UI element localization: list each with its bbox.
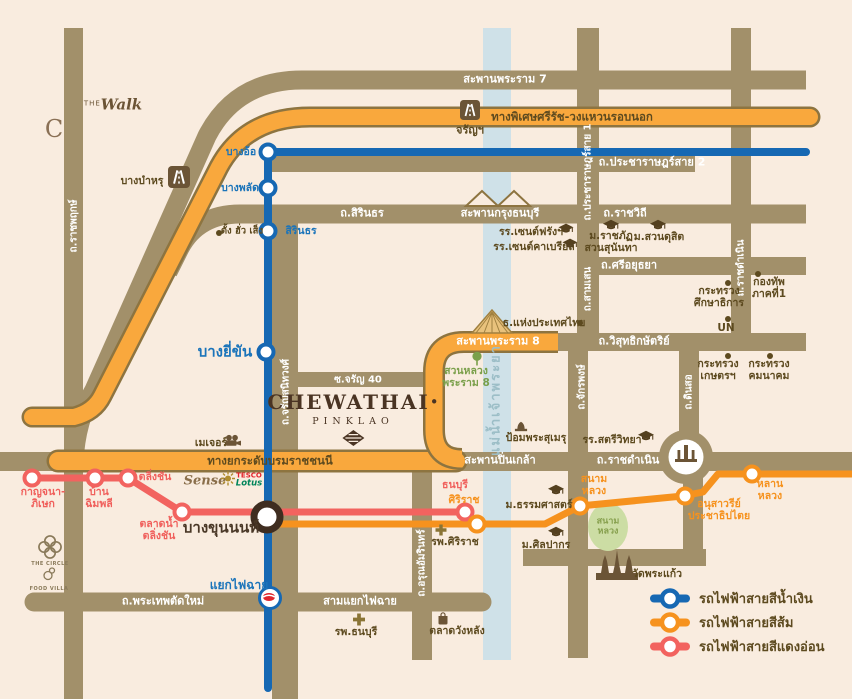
democracy-monument-roundabout bbox=[659, 430, 713, 484]
poi-label-charan-gate: จรัญฯ bbox=[456, 125, 484, 138]
poi-label-thonburi-hospital: รพ.ธนบุรี bbox=[335, 626, 377, 638]
tesco-lotus-logo: TESCO Lotus bbox=[236, 472, 262, 488]
station-label-taling-chan: ตลิ่งชัน bbox=[139, 471, 172, 483]
station-label-kanchanaphisek: กาญจนา-ภิเษก bbox=[21, 486, 66, 510]
label-line-1: กระทรวง bbox=[698, 285, 739, 297]
road-label-pracharat2: ถ.ประชาราษฎร์สาย 2 bbox=[599, 157, 706, 170]
label-line-1: อนุสาวรีย์ bbox=[697, 498, 740, 510]
road-label-phrathep: ถ.พระเทพตัดใหม่ bbox=[122, 596, 204, 609]
road-label-borommaratchachonnani: ทางยกระดับบรมราชชนนี bbox=[207, 454, 333, 467]
label-line-1: สวนหลวง bbox=[444, 365, 488, 377]
station-marker-siriraj bbox=[468, 515, 487, 534]
poi-label-phra-sumen-fort: ป้อมพระสุเมรุ bbox=[506, 432, 567, 444]
station-marker-bang-o bbox=[259, 143, 278, 162]
road-label-sirindhorn: ถ.สิรินธร bbox=[340, 208, 384, 221]
poi-label-suan-dusit: ม.สวนดุสิต bbox=[634, 231, 684, 243]
red-line-legend-icon bbox=[650, 636, 690, 657]
road-label-pinklao-bridge: สะพานปิ่นเกล้า bbox=[464, 455, 535, 468]
motorway-icon bbox=[460, 100, 480, 124]
label-line-2: ตลิ่งชัน bbox=[143, 530, 176, 542]
poi-label-wang-lang-market: ตลาดวังหลัง bbox=[429, 625, 484, 637]
label-line-1: สนาม bbox=[581, 473, 607, 485]
label-line-2: ประชาธิปไตย bbox=[688, 510, 750, 522]
road-label-rama7: สะพานพระราม 7 bbox=[463, 74, 546, 87]
station-marker-kanchanaphisek bbox=[23, 469, 42, 488]
graduation-cap-icon bbox=[563, 236, 578, 255]
label-line-2: ศึกษาธิการ bbox=[694, 297, 744, 309]
sense-logo: Sense bbox=[184, 474, 227, 489]
movie-camera-icon bbox=[225, 432, 241, 451]
label-line-2: สวนสุนันทา bbox=[584, 242, 637, 254]
poi-label-army-area1: กองทัพภาคที่1 bbox=[752, 276, 786, 300]
food-villa-logo-icon bbox=[42, 567, 57, 586]
station-label-democracy-monument: อนุสาวรีย์ประชาธิปไตย bbox=[688, 498, 750, 522]
label-line-2: หลวง bbox=[582, 485, 606, 497]
legend-item-red-line: รถไฟฟ้าสายสีแดงอ่อน bbox=[650, 636, 825, 657]
label-line-1: ตลาดน้ำ bbox=[139, 518, 178, 530]
the-walk-logo-text: THE bbox=[84, 100, 101, 108]
the-walk-logo: THEWalk bbox=[84, 95, 142, 114]
poi-label-st-francis: รร.เซนต์ฟรังฯ bbox=[499, 226, 563, 238]
poi-label-bank-of-thailand: ธ.แห่งประเทศไทย bbox=[503, 317, 586, 329]
legend-label-blue-line: รถไฟฟ้าสายสีน้ำเงิน bbox=[699, 588, 813, 609]
road-label-wisutkasat: ถ.วิสุทธิกษัตริย์ bbox=[598, 336, 669, 349]
label-line-2: ภาคที่1 bbox=[752, 288, 786, 300]
label-line-1: หลาน bbox=[757, 478, 783, 490]
label-line-2: หลวง bbox=[758, 490, 782, 502]
chewathai-diamond-icon bbox=[342, 430, 364, 446]
c-mall-logo: C bbox=[45, 115, 63, 143]
station-label-sirindhorn: สิรินธร bbox=[285, 225, 316, 237]
poi-label-sanam-luang-park: สนามหลวง bbox=[597, 517, 620, 538]
label-line-2: ภิเษก bbox=[31, 498, 55, 510]
legend-item-blue-line: รถไฟฟ้าสายสีน้ำเงิน bbox=[650, 588, 813, 609]
station-label-sanam-luang: สนามหลวง bbox=[581, 473, 607, 497]
road-label-ratchaphruek: ถ.ราชพฤกษ์ bbox=[68, 200, 80, 253]
road-label-dinso: ถ.ดินสอ bbox=[683, 374, 695, 409]
poi-label-ministry-education: กระทรวงศึกษาธิการ bbox=[694, 285, 744, 309]
station-label-bang-o: บางอ้อ bbox=[226, 146, 256, 158]
orange-line-legend-icon bbox=[650, 612, 690, 633]
poi-label-bang-bamru: บางบำหรุ bbox=[121, 175, 164, 187]
label-line-1: กองทัพ bbox=[753, 276, 785, 288]
project-name: CHEWATHAI bbox=[267, 390, 429, 414]
label-line-1: กระทรวง bbox=[697, 358, 738, 370]
graduation-cap-icon bbox=[638, 429, 654, 448]
brand-dot: • bbox=[430, 393, 439, 411]
label-line-2: ฉิมพลี bbox=[85, 498, 112, 510]
label-line-1: กระทรวง bbox=[748, 358, 789, 370]
project-brand: CHEWATHAI• PINKLAO bbox=[267, 390, 438, 450]
label-line-1: บ้าน bbox=[89, 486, 109, 498]
sun-store-logo-icon bbox=[221, 471, 235, 490]
lotus-logo-text: Lotus bbox=[236, 479, 262, 488]
river-label: แม่น้ำเจ้าพระยา bbox=[490, 344, 505, 456]
poi-label-ministry-agriculture: กระทรวงเกษตรฯ bbox=[697, 358, 738, 382]
road-label-krungthon-bridge: สะพานกรุงธนบุรี bbox=[461, 208, 540, 221]
road-label-samyaek-faichai: สามแยกไฟฉาย bbox=[323, 596, 397, 609]
station-label-lan-luang: หลานหลวง bbox=[757, 478, 783, 502]
road-label-soi-charan-40: ซ.จรัญ 40 bbox=[334, 374, 382, 386]
station-marker-taling-chan bbox=[119, 469, 138, 488]
label-line-2: เกษตรฯ bbox=[700, 370, 735, 382]
label-line-1: สนาม bbox=[597, 517, 620, 527]
station-label-bang-khunnon: บางขุนนนท์ bbox=[183, 519, 259, 536]
road-label-arun-amarin: ถ.อรุณอัมรินทร์ bbox=[416, 529, 428, 596]
poi-label-ministry-transport: กระทรวงคมนาคม bbox=[748, 358, 789, 382]
road-label-sriayutthaya: ถ.ศรีอยุธยา bbox=[601, 260, 657, 273]
station-label-siriraj: ศิริราช bbox=[449, 494, 480, 506]
label-line-1: ม.ราชภัฏ bbox=[589, 230, 633, 242]
poi-label-satriwit: รร.สตรีวิทยา bbox=[582, 434, 641, 446]
station-marker-bang-phlat bbox=[259, 179, 278, 198]
label-line-2: พระราม 8 bbox=[442, 377, 490, 389]
station-label-bang-yikhan: บางยี่ขัน bbox=[198, 343, 253, 360]
station-label-ban-chimphli: บ้านฉิมพลี bbox=[85, 486, 112, 510]
poi-label-siriraj-hospital: รพ.ศิริราช bbox=[431, 536, 479, 548]
road-label-samsen: ถ.สามเสน bbox=[582, 267, 594, 312]
the-circle-logo-icon bbox=[37, 534, 63, 564]
poi-label-silpakorn: ม.ศิลปากร bbox=[522, 539, 571, 551]
project-subtitle: PINKLAO bbox=[267, 416, 438, 427]
poi-label-major-cineplex: เมเจอร์ bbox=[195, 437, 227, 449]
station-label-bang-phlat: บางพลัด bbox=[221, 182, 259, 194]
poi-label-rama8-park: สวนหลวงพระราม 8 bbox=[442, 365, 490, 389]
poi-label-un: UN bbox=[717, 322, 734, 334]
road-label-chakphong: ถ.จักรพงษ์ bbox=[576, 364, 588, 409]
legend-label-orange-line: รถไฟฟ้าสายสีส้ม bbox=[699, 612, 793, 633]
food-villa-logo-text: FOOD VILLA bbox=[30, 586, 69, 592]
legend-label-red-line: รถไฟฟ้าสายสีแดงอ่อน bbox=[699, 636, 825, 657]
station-label-thonburi: ธนบุรี bbox=[442, 479, 468, 491]
label-line-2: คมนาคม bbox=[749, 370, 790, 382]
motorway-icon bbox=[168, 166, 190, 192]
label-line-2: หลวง bbox=[598, 527, 619, 537]
the-walk-logo-script: Walk bbox=[101, 96, 142, 114]
poi-label-tang-hua-seng: ตั้ง ฮั่ว เส็ง bbox=[221, 227, 263, 238]
station-label-yaek-faichai: แยกไฟฉาย bbox=[210, 579, 269, 593]
label-line-1: กาญจนา- bbox=[21, 486, 66, 498]
location-map: สะพานพระราม 7 ทางพิเศษศรีรัช-วงแหวนรอบนอ… bbox=[0, 0, 852, 699]
poi-label-wat-phra-kaew: วัดพระแก้ว bbox=[632, 568, 682, 580]
legend-item-orange-line: รถไฟฟ้าสายสีส้ม bbox=[650, 612, 793, 633]
station-marker-bang-yikhan bbox=[257, 343, 276, 362]
road-label-pracharat1: ถ.ประชาราษฎร์สาย 1 bbox=[582, 123, 594, 220]
poi-label-thammasat: ม.ธรรมศาสตร์ bbox=[506, 499, 573, 511]
blue-line-legend-icon bbox=[650, 588, 690, 609]
station-marker-sanam-luang bbox=[571, 497, 590, 516]
station-marker-ban-chimphli bbox=[86, 469, 105, 488]
road-label-ratchadamnoen: ถ.ราชดำเนิน bbox=[597, 455, 660, 468]
road-label-srirat-expressway: ทางพิเศษศรีรัช-วงแหวนรอบนอก bbox=[491, 110, 653, 123]
poi-dot bbox=[577, 320, 583, 326]
station-label-talat-nam-taling-chan: ตลาดน้ำตลิ่งชัน bbox=[139, 518, 178, 542]
poi-label-suan-sunandha: ม.ราชภัฏสวนสุนันทา bbox=[584, 230, 637, 254]
